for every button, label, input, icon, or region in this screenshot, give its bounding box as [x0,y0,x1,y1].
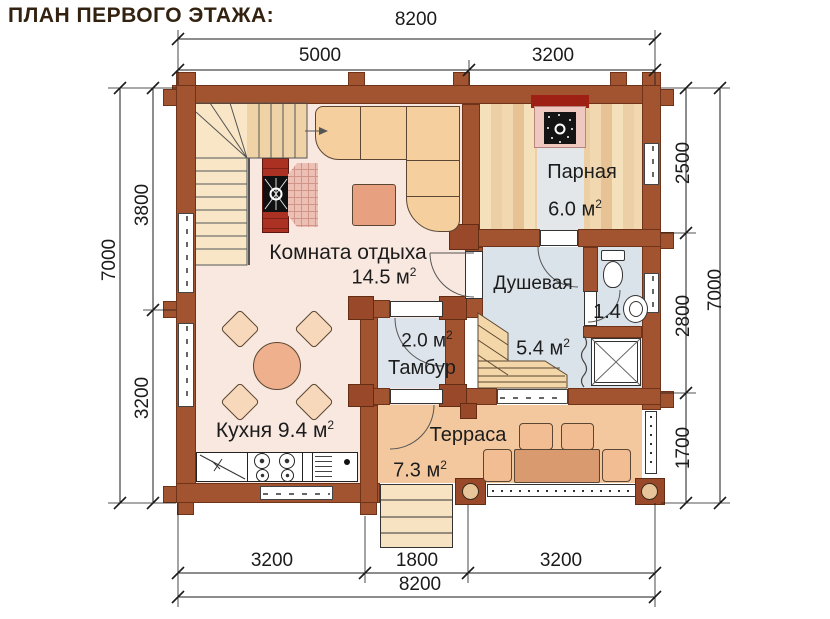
toilet-tank [601,250,625,261]
stove-firebox [263,176,288,212]
window-shower-terrace [497,389,568,404]
staircase-lower-flight [196,103,247,265]
staircase-upper-flight [247,103,307,158]
wall-exterior-right [642,85,661,410]
sauna-heater-stove [544,112,576,144]
room-label-terrace-name: Терраса [412,424,524,447]
stove-burner [254,453,270,469]
stove-burner [256,469,269,482]
log-stub [176,72,196,86]
log-stub [177,502,194,515]
dim-left-overall: 7000 [99,230,121,290]
dim-left-bottom: 3200 [132,368,154,428]
terrace-chair [519,423,553,450]
sofa-seam [360,107,361,159]
log-stub [610,72,627,86]
dim-bottom-right: 3200 [501,550,621,572]
room-label-rest-area: 14.5 м2 [332,265,436,290]
shower-cabin-inner [594,341,638,383]
dim-right-top: 2500 [673,133,695,193]
sofa-seam [406,107,407,159]
dim-bottom-overall: 8200 [360,574,480,596]
log-stub [163,89,177,106]
window-kitchen-bottom [260,486,333,500]
dim-right-middle: 2800 [673,286,695,346]
log-post [460,403,477,419]
corner-sofa-vertical [406,106,460,232]
terrace-railing-bottom [487,484,637,497]
log-stub [660,232,674,249]
log-stub [660,391,674,408]
log-post [348,296,374,320]
page-title: ПЛАН ПЕРВОГО ЭТАЖА: [8,4,274,28]
dim-bottom-left: 3200 [212,550,332,572]
log-stub [163,486,177,503]
stove-burner [279,453,295,469]
terrace-post-cap [641,483,658,500]
room-label-vestibule-area: 2.0 м2 [392,328,462,352]
wall-terrace-north-c [568,388,661,405]
terrace-post-cap [462,483,479,500]
wall-wc-south [583,326,642,338]
dim-bottom-middle: 1800 [357,550,477,572]
entry-steps [380,484,453,548]
dim-right-overall: 7000 [705,260,727,320]
log-stub [660,89,674,106]
room-label-shower-name: Душевая [480,273,586,295]
terrace-chair [561,423,594,450]
window-sauna-right [644,143,659,185]
log-stub [360,502,377,515]
hearth-tiles [288,163,318,227]
counter-divider [247,452,248,482]
door-vestibule-north [390,301,443,317]
kitchen-round-table [253,342,301,390]
window-left-lower [178,323,194,407]
dim-right-bottom: 1700 [673,418,695,478]
coffee-table [352,184,396,226]
log-stub [163,301,177,318]
room-label-shower-area: 5.4 м2 [496,336,590,361]
log-post [348,384,374,407]
toilet-bowl [603,261,623,288]
terrace-chair [602,449,631,482]
wall-sauna-west [462,104,480,230]
stove-burner [281,469,294,482]
dim-top-left: 5000 [260,45,380,67]
room-label-sauna-area: 6.0 м2 [528,197,622,222]
fridge-handle-dot [344,459,350,465]
log-post [439,296,467,320]
log-stub [348,72,365,86]
kitchen-counter [196,452,358,482]
wc-sink-basin [629,301,643,317]
room-label-sauna-name: Парная [530,161,634,184]
counter-divider [302,452,303,482]
sofa-seam [407,160,459,161]
dim-top-overall: 8200 [356,9,476,31]
terrace-chair [483,449,512,482]
room-label-wc-area: 1.4 [588,301,626,324]
terrace-table [514,449,600,483]
fridge-vents [315,456,332,478]
door-vestibule-terrace [390,389,443,404]
room-label-vestibule-name: Тамбур [374,357,470,380]
room-label-terrace-area: 7.3 м2 [378,458,462,483]
wall-sauna-south-right [578,229,661,247]
door-sauna [540,230,578,246]
dim-top-right: 3200 [493,45,613,67]
sofa-seam [407,196,459,197]
terrace-railing-right [645,411,657,474]
dim-left-top: 3800 [132,175,154,235]
window-left-upper [178,213,194,293]
room-label-rest-name: Комната отдыха [250,241,446,265]
log-stub [453,72,470,86]
floor-plan-canvas: ПЛАН ПЕРВОГО ЭТАЖА: [0,0,830,619]
counter-divider [312,452,313,482]
log-stub [642,72,661,86]
room-label-kitchen: Кухня 9.4 м2 [177,418,373,443]
